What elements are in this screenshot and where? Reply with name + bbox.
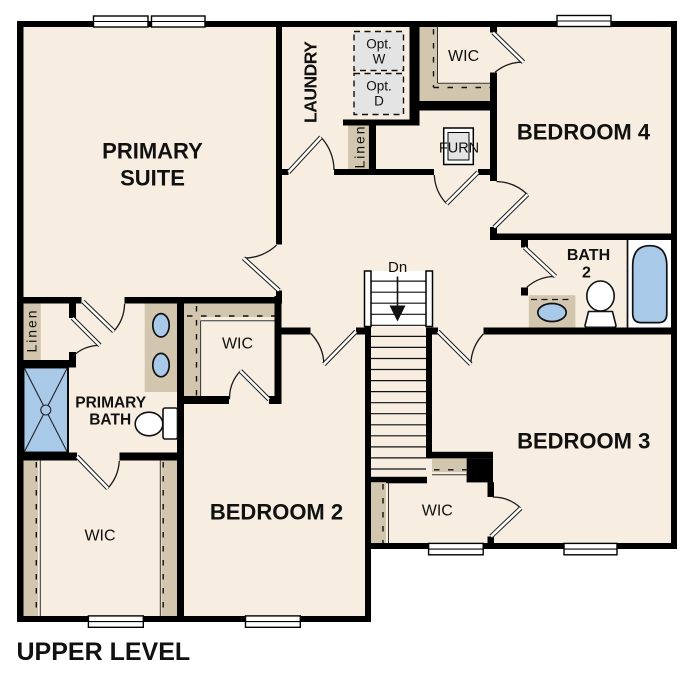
svg-text:WIC: WIC (222, 336, 253, 353)
svg-text:PRIMARY: PRIMARY (102, 139, 203, 164)
svg-text:FURN: FURN (439, 141, 479, 157)
svg-text:BEDROOM 3: BEDROOM 3 (517, 429, 650, 454)
svg-text:BATH: BATH (567, 247, 610, 264)
svg-text:BEDROOM 4: BEDROOM 4 (517, 120, 651, 145)
svg-text:2: 2 (582, 265, 591, 282)
svg-text:W: W (373, 52, 386, 67)
svg-text:SUITE: SUITE (120, 166, 185, 191)
svg-text:BATH: BATH (89, 412, 131, 429)
svg-text:Linen: Linen (24, 311, 40, 353)
svg-text:WIC: WIC (422, 503, 453, 520)
svg-text:BEDROOM 2: BEDROOM 2 (210, 500, 343, 525)
svg-text:UPPER LEVEL: UPPER LEVEL (17, 638, 191, 666)
svg-text:Dn: Dn (388, 259, 407, 276)
svg-text:WIC: WIC (84, 528, 115, 545)
svg-text:Opt.: Opt. (366, 79, 392, 94)
svg-text:Opt.: Opt. (366, 37, 392, 52)
svg-text:D: D (374, 94, 384, 109)
svg-text:LAUNDRY: LAUNDRY (301, 41, 321, 123)
svg-text:PRIMARY: PRIMARY (75, 395, 147, 412)
svg-text:WIC: WIC (448, 48, 479, 65)
svg-text:Linen: Linen (352, 127, 368, 169)
